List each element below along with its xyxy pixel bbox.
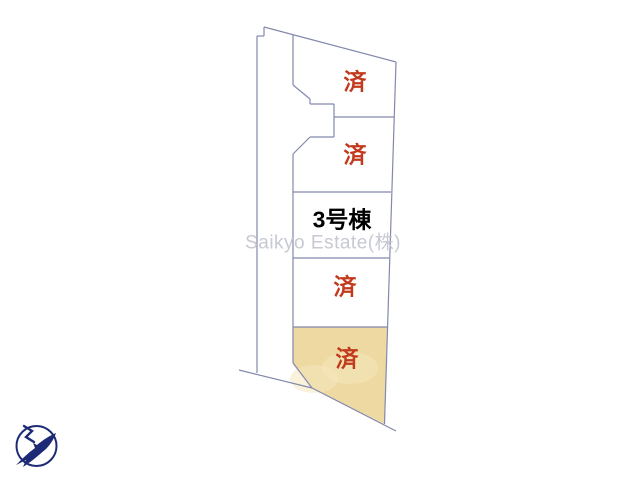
lot5-status-label: 済 [336,348,359,371]
lot2-status-label: 済 [344,144,367,167]
lot4-status-label: 済 [334,276,357,299]
lot3-building-name-label: 3号棟 [313,209,372,232]
sold-lot-fill-group [290,327,387,424]
watermark: Saikyo Estate(株) [245,234,401,253]
north-compass-icon [13,422,61,470]
lot1-status-label: 済 [344,71,367,94]
site-plan-canvas: 済 済 3号棟 Saikyo Estate(株) 済 済 [0,0,640,480]
